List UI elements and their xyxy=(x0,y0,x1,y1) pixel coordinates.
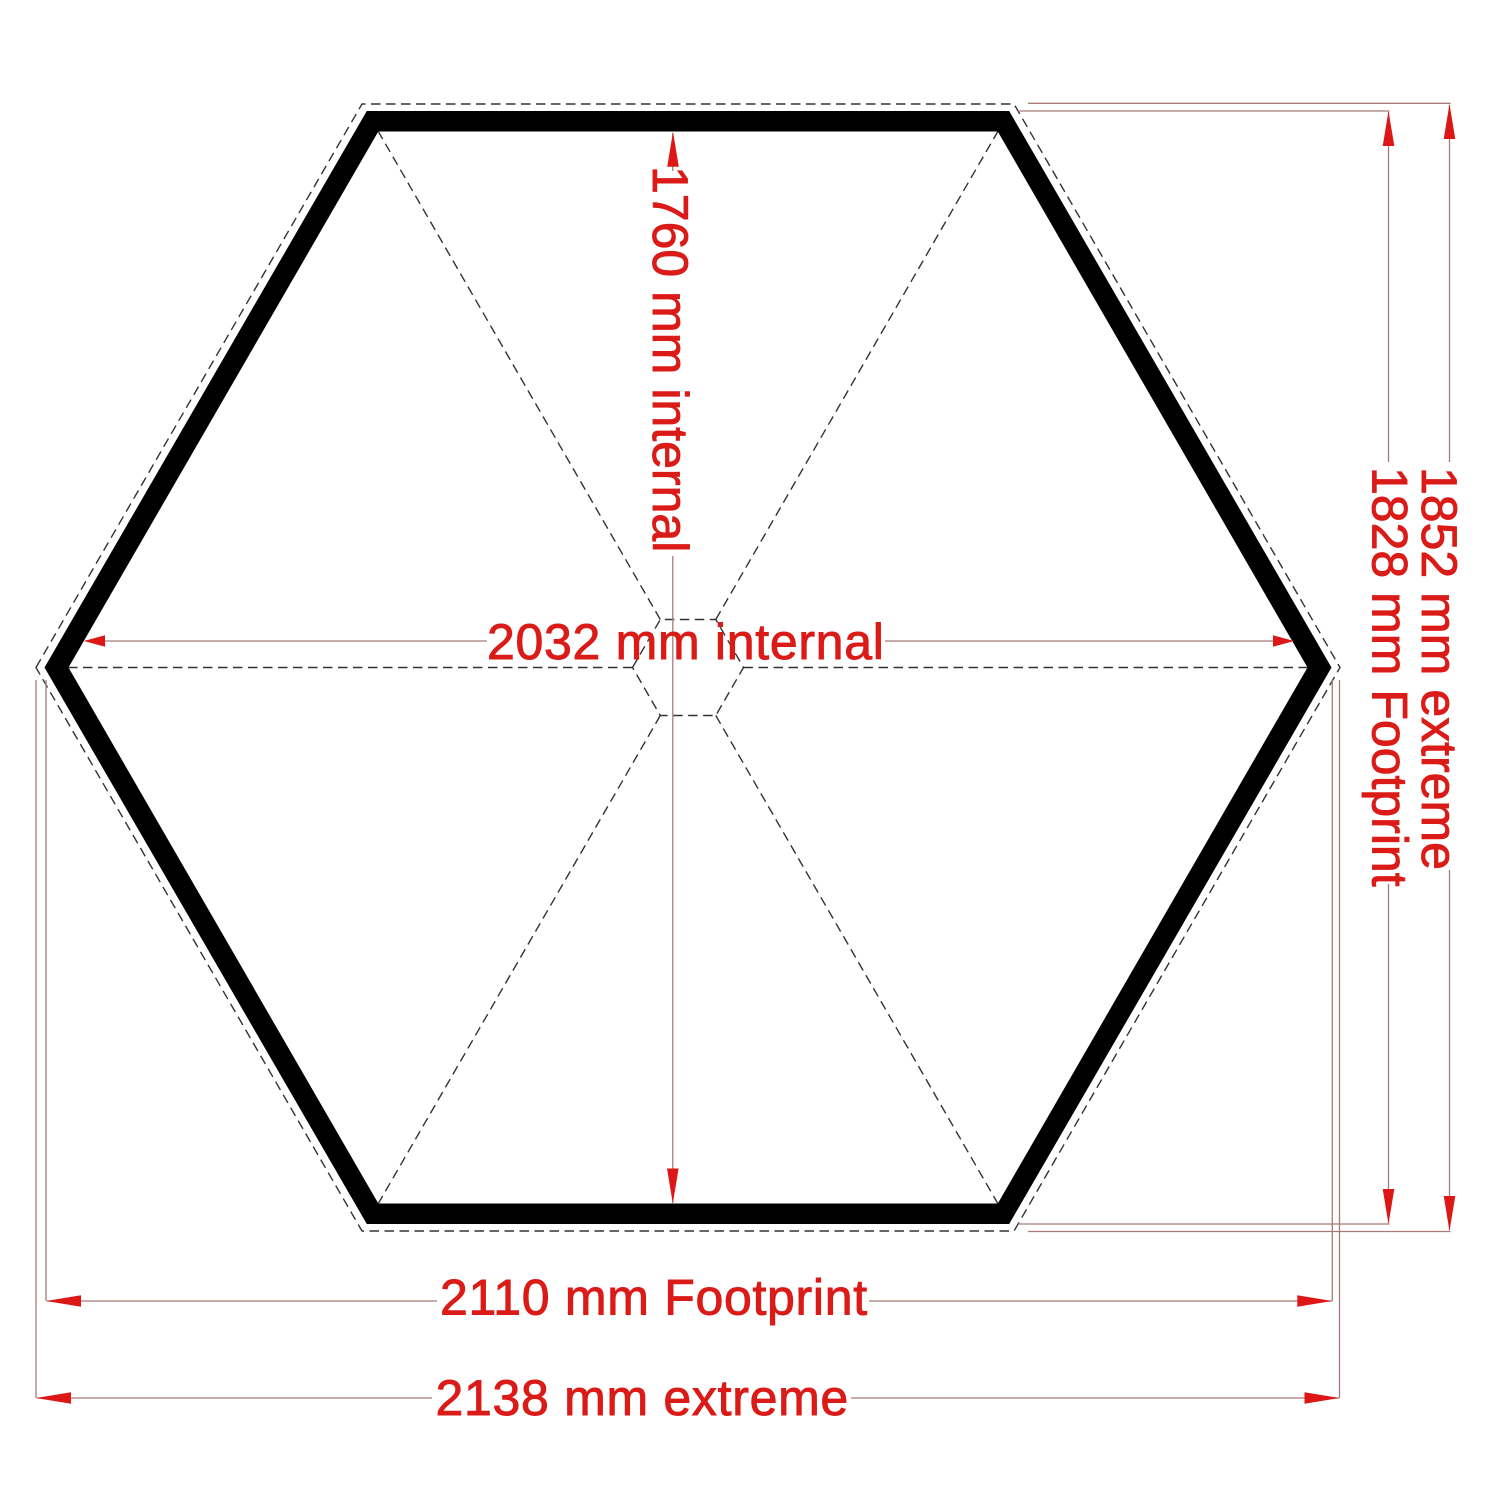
svg-text:1852 mm extreme: 1852 mm extreme xyxy=(1411,467,1467,870)
svg-text:2110 mm Footprint: 2110 mm Footprint xyxy=(440,1270,868,1326)
svg-text:2032 mm internal: 2032 mm internal xyxy=(487,614,885,670)
svg-text:1760 mm internal: 1760 mm internal xyxy=(642,166,698,552)
svg-text:1828 mm Footprint: 1828 mm Footprint xyxy=(1362,467,1418,887)
svg-text:2138 mm extreme: 2138 mm extreme xyxy=(436,1370,849,1426)
